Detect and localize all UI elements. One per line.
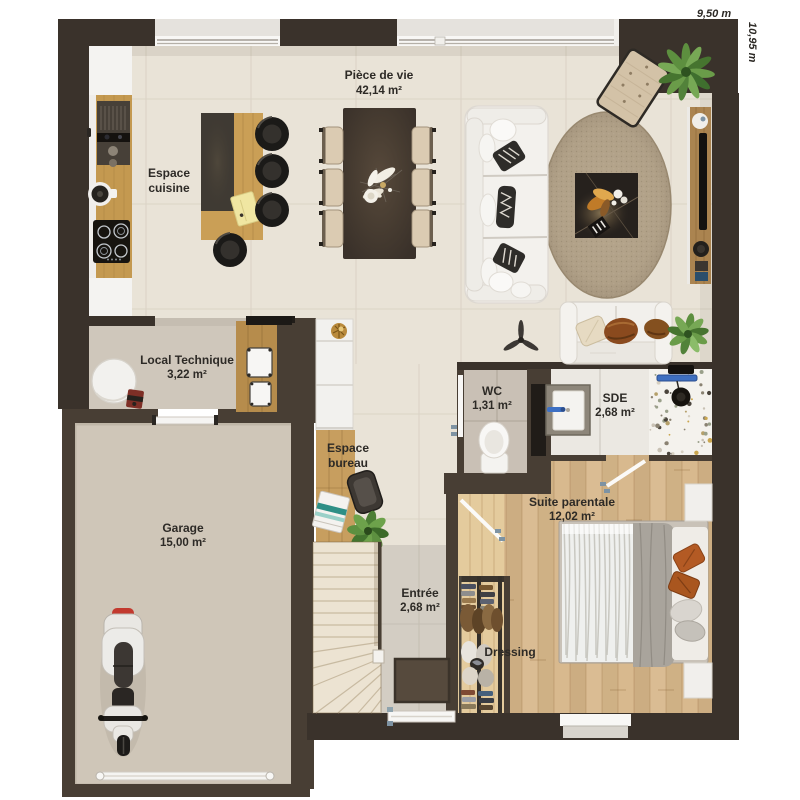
svg-text:cuisine: cuisine <box>148 181 190 195</box>
svg-text:Espace: Espace <box>327 441 369 455</box>
svg-text:Entrée: Entrée <box>401 586 439 600</box>
svg-text:Espace: Espace <box>148 166 190 180</box>
svg-text:SDE: SDE <box>603 391 628 405</box>
svg-text:10,95 m: 10,95 m <box>746 22 758 63</box>
svg-text:2,68 m²: 2,68 m² <box>595 407 635 419</box>
svg-text:12,02 m²: 12,02 m² <box>549 511 595 523</box>
svg-text:3,22 m²: 3,22 m² <box>167 369 207 381</box>
svg-text:Dressing: Dressing <box>484 645 535 659</box>
svg-text:Suite parentale: Suite parentale <box>529 495 615 509</box>
svg-text:WC: WC <box>482 384 502 398</box>
svg-text:Garage: Garage <box>162 521 204 535</box>
svg-text:Local Technique: Local Technique <box>140 353 234 367</box>
svg-text:9,50 m: 9,50 m <box>697 8 731 20</box>
svg-text:2,68 m²: 2,68 m² <box>400 602 440 614</box>
svg-text:42,14 m²: 42,14 m² <box>356 85 402 97</box>
svg-text:15,00 m²: 15,00 m² <box>160 537 206 549</box>
svg-text:bureau: bureau <box>328 456 368 470</box>
svg-text:Pièce de vie: Pièce de vie <box>345 68 414 82</box>
svg-text:1,31 m²: 1,31 m² <box>472 400 512 412</box>
